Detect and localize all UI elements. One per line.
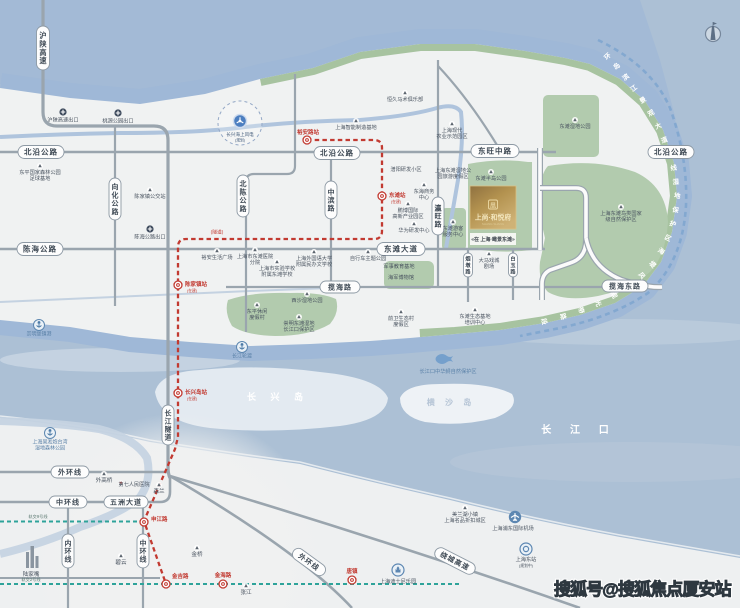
svg-text:西沙湿地公园: 西沙湿地公园 [291,296,322,304]
svg-text:前卫生态村: 前卫生态村 [388,314,414,322]
svg-text:裕安路站: 裕安路站 [297,128,320,136]
svg-text:«在 上海·瞰景东滩»: «在 上海·瞰景东滩» [471,236,515,243]
svg-text:上海东滩湿地公: 上海东滩湿地公 [435,166,471,174]
svg-text:长江轮渡: 长江轮渡 [232,353,252,360]
svg-text:培训中心: 培训中心 [465,318,486,326]
svg-text:白玉路: 白玉路 [510,254,516,275]
svg-text:陈家镇公交站: 陈家镇公交站 [134,192,165,200]
svg-text:上海市东滩医院: 上海市东滩医院 [237,252,274,260]
svg-text:长江隧道: 长江隧道 [165,408,172,441]
svg-text:横 沙 岛: 横 沙 岛 [427,397,475,407]
svg-text:沪陕高速: 沪陕高速 [39,31,47,65]
svg-text:沪陕高速出口: 沪陕高速出口 [47,116,78,124]
svg-text:中心: 中心 [419,193,429,201]
svg-text:度假村: 度假村 [249,313,265,321]
svg-text:东平休闲: 东平休闲 [247,307,268,315]
svg-text:附属东滩学校: 附属东滩学校 [261,270,292,278]
svg-text:(隧道): (隧道) [211,229,224,236]
svg-text:陈海公路出口: 陈海公路出口 [134,233,165,241]
svg-text:东滩站: 东滩站 [389,191,406,199]
svg-text:长兴海上风电: 长兴海上风电 [226,131,254,138]
svg-text:五洲大道: 五洲大道 [110,498,142,507]
svg-text:碧云: 碧云 [115,558,127,566]
svg-text:北沿公路: 北沿公路 [24,147,58,157]
svg-text:金海路: 金海路 [214,571,232,579]
svg-text:上海东站: 上海东站 [516,555,537,563]
svg-text:外环线: 外环线 [58,468,82,477]
svg-text:申江路: 申江路 [151,515,168,523]
svg-text:内环线: 内环线 [65,538,72,563]
svg-text:北沿公路: 北沿公路 [320,148,354,158]
svg-text:东海商务: 东海商务 [414,187,435,195]
svg-text:海军博物馆: 海军博物馆 [388,273,414,281]
svg-text:中环线: 中环线 [140,538,147,563]
svg-text:园旅游度假区: 园旅游度假区 [437,172,468,180]
svg-text:中滨路: 中滨路 [328,187,336,212]
svg-text:上海外国语大学: 上海外国语大学 [296,254,332,262]
svg-text:瀛旺路: 瀛旺路 [435,203,443,228]
svg-text:北陈公路: 北陈公路 [240,179,248,213]
svg-text:附属民办文学校: 附属民办文学校 [296,260,332,268]
svg-text:东滩游客: 东滩游客 [443,224,464,232]
svg-text:分院: 分院 [250,258,261,266]
svg-text:唐镇: 唐镇 [345,567,358,575]
svg-text:北沿公路: 北沿公路 [654,147,688,157]
svg-text:美兰湖小镇: 美兰湖小镇 [452,510,478,518]
svg-text:揽海东路: 揽海东路 [609,282,641,291]
svg-text:东旺中路: 东旺中路 [478,146,512,156]
svg-text:崇明东滩湿地: 崇明东滩湿地 [283,319,314,327]
svg-text:金桥: 金桥 [191,550,203,558]
svg-text:凰: 凰 [490,203,496,210]
svg-text:中环线: 中环线 [56,498,80,507]
svg-text:足球基地: 足球基地 [30,174,51,182]
svg-text:自行车主题公园: 自行车主题公园 [350,254,386,262]
svg-text:陆家嘴: 陆家嘴 [23,570,40,578]
svg-text:潽阳研发小区: 潽阳研发小区 [390,165,421,173]
svg-text:服务中心: 服务中心 [443,230,464,238]
svg-text:度假区: 度假区 [393,320,409,328]
svg-text:SHANG SHANG: SHANG SHANG [482,222,505,226]
svg-text:上海现代: 上海现代 [442,126,464,134]
svg-text:搜狐号@搜狐焦点厦安站: 搜狐号@搜狐焦点厦安站 [554,579,732,599]
svg-text:森兰: 森兰 [153,487,165,495]
svg-text:级自然保护区: 级自然保护区 [605,215,636,223]
svg-text:陈家镇站: 陈家镇站 [185,280,208,288]
svg-text:轨交9号线: 轨交9号线 [28,513,48,520]
svg-text:华为研发中心: 华为研发中心 [398,226,429,234]
svg-text:军事教育基地: 军事教育基地 [383,262,414,270]
svg-text:向化公路: 向化公路 [112,182,120,216]
svg-text:外高桥: 外高桥 [96,476,113,484]
svg-text:揽海路: 揽海路 [328,283,352,292]
svg-text:上海东滩鸟类国家: 上海东滩鸟类国家 [600,209,642,217]
svg-text:上海浦东国际机场: 上海浦东国际机场 [492,524,534,532]
svg-text:湿地森林公园: 湿地森林公园 [35,445,65,452]
svg-text:长 兴 岛: 长 兴 岛 [247,391,309,402]
svg-text:崇明堡镇港: 崇明堡镇港 [26,331,51,338]
svg-text:陈海公路: 陈海公路 [23,244,57,254]
svg-text:高新产业园区: 高新产业园区 [392,212,423,220]
svg-text:上海迪士尼乐园: 上海迪士尼乐园 [380,577,416,585]
svg-text:长江口中华鲟自然保护区: 长江口中华鲟自然保护区 [419,367,476,375]
svg-text:(规划中): (规划中) [519,563,534,568]
svg-text:东滩半岛公园: 东滩半岛公园 [475,174,506,182]
svg-text:张江: 张江 [240,588,252,596]
svg-text:恒久马术俱乐部: 恒久马术俱乐部 [387,95,423,103]
svg-text:上尚·和悦府: 上尚·和悦府 [475,213,511,222]
svg-text:(在建): (在建) [187,396,198,401]
svg-text:上海智能制造基地: 上海智能制造基地 [335,123,377,131]
svg-text:(规划): (规划) [235,138,246,143]
svg-text:剧场: 剧场 [484,262,494,270]
svg-text:(在建): (在建) [187,288,198,293]
svg-text:上海吴淞炮台湾: 上海吴淞炮台湾 [32,439,67,446]
svg-text:第七人民医院: 第七人民医院 [118,480,150,488]
svg-text:烟墩路: 烟墩路 [465,254,471,275]
svg-text:金吉路: 金吉路 [171,572,189,580]
svg-text:鹏博国际: 鹏博国际 [398,206,419,214]
svg-text:东滩湿地公园: 东滩湿地公园 [559,122,590,130]
svg-text:东滩大道: 东滩大道 [384,244,418,254]
svg-text:裕安生活广场: 裕安生活广场 [201,253,232,261]
svg-text:桃源公园出口: 桃源公园出口 [102,117,133,125]
svg-text:上海市实验学校: 上海市实验学校 [259,264,295,272]
svg-text:农业示范园区: 农业示范园区 [436,132,467,140]
svg-text:(在建): (在建) [391,199,402,204]
svg-text:东滩生态基地: 东滩生态基地 [459,312,490,320]
svg-text:长江口保护区: 长江口保护区 [283,325,314,333]
svg-text:大马戏城: 大马戏城 [479,256,501,264]
svg-text:东平国家森林公园: 东平国家森林公园 [19,168,61,176]
svg-text:长 江 口: 长 江 口 [541,423,617,436]
svg-text:上海名品折扣城区: 上海名品折扣城区 [444,516,486,524]
svg-text:长兴岛站: 长兴岛站 [185,388,208,396]
